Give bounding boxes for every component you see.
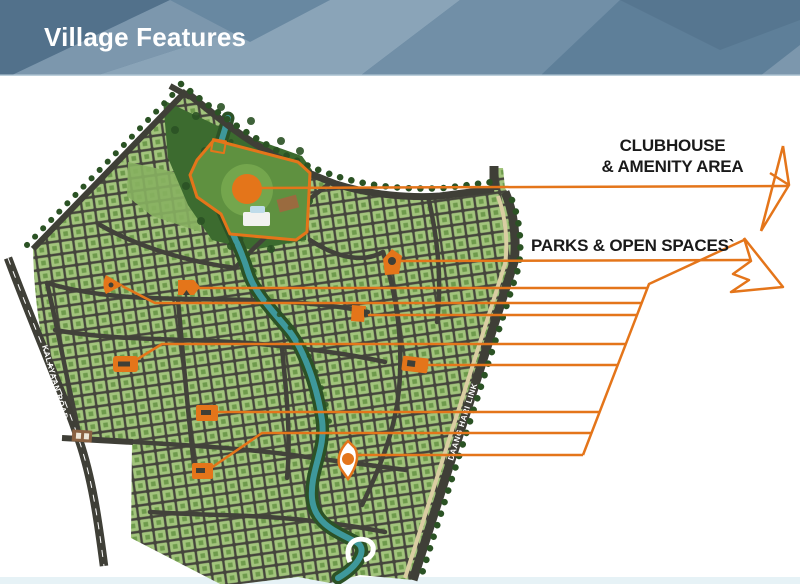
parks-arrow-icon [731, 238, 783, 292]
park-marker [113, 356, 138, 372]
clubhouse-label-line2: & AMENITY AREA [565, 156, 780, 177]
clubhouse-marker [232, 174, 262, 204]
parks-label: PARKS & OPEN SPACES` [531, 236, 734, 256]
page-title: Village Features [44, 22, 246, 53]
park-marker [401, 355, 429, 373]
pool [250, 206, 265, 213]
park-marker [192, 463, 213, 479]
entrance-gate [72, 429, 93, 442]
site-plan-map: KALAYAAN ROAD DAANG HARI LINK [0, 0, 800, 584]
leader-collector-line [583, 240, 744, 455]
clubhouse-building [243, 212, 270, 226]
clubhouse-label-line1: CLUBHOUSE [565, 135, 780, 156]
park-marker [196, 405, 218, 421]
header-band: Village Features [0, 0, 800, 78]
slide: KALAYAAN ROAD DAANG HARI LINK [0, 0, 800, 584]
clubhouse-label: CLUBHOUSE & AMENITY AREA [565, 135, 780, 177]
